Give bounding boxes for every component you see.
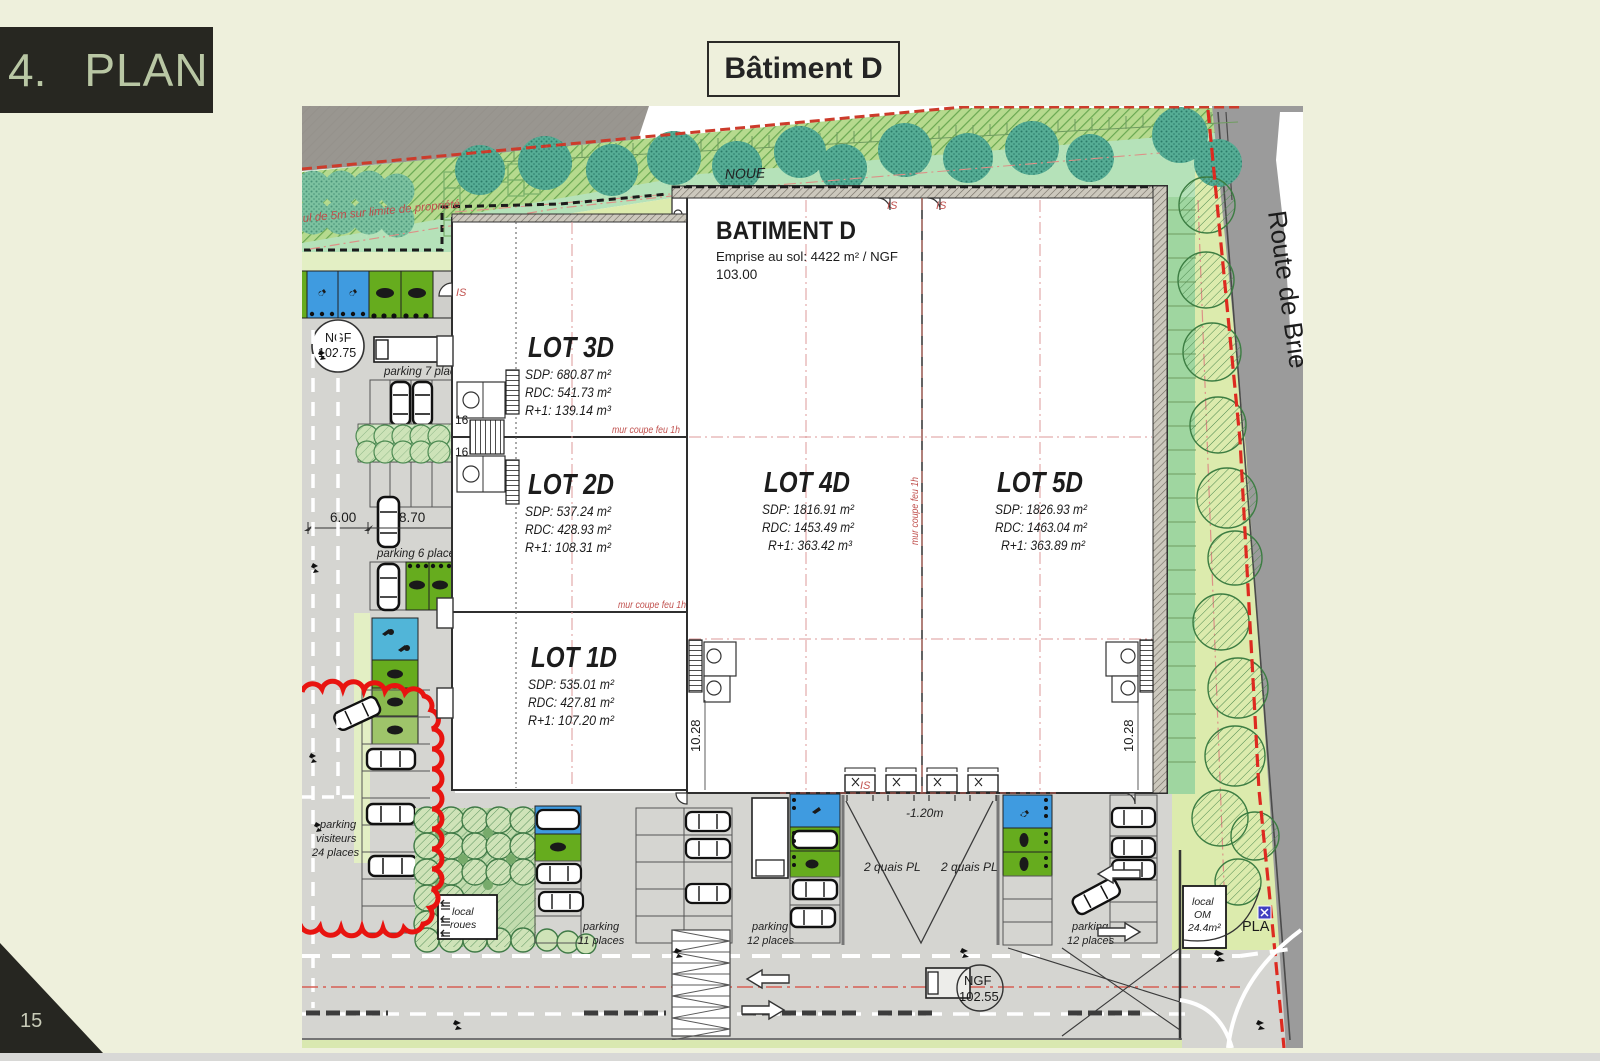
svg-text:R+1: 139.14 m³: R+1: 139.14 m³ — [525, 403, 611, 418]
svg-text:mur coupe feu 1h: mur coupe feu 1h — [618, 599, 686, 611]
svg-text:-1.20m: -1.20m — [906, 806, 943, 820]
svg-text:IS: IS — [936, 200, 947, 212]
svg-text:10.28: 10.28 — [688, 719, 703, 752]
svg-text:R+1: 363.42 m³: R+1: 363.42 m³ — [768, 538, 852, 553]
svg-text:R+1: 107.20 m²: R+1: 107.20 m² — [528, 713, 614, 728]
svg-text:mur coupe feu 1h: mur coupe feu 1h — [612, 424, 680, 436]
svg-text:NGF: NGF — [964, 973, 992, 988]
svg-text:LOT 3D: LOT 3D — [528, 332, 614, 364]
svg-text:R+1: 108.31 m²: R+1: 108.31 m² — [525, 540, 611, 555]
svg-text:LOT 1D: LOT 1D — [531, 642, 617, 674]
svg-text:SDP: 1826.93 m²: SDP: 1826.93 m² — [995, 502, 1087, 517]
svg-text:visiteurs: visiteurs — [316, 833, 357, 845]
svg-text:Emprise au sol: 4422 m² / NGF: Emprise au sol: 4422 m² / NGF — [716, 249, 898, 264]
svg-text:12 places: 12 places — [1067, 935, 1115, 947]
svg-text:24 places: 24 places — [311, 847, 360, 859]
svg-text:103.00: 103.00 — [716, 267, 757, 282]
svg-text:LOT 4D: LOT 4D — [764, 467, 850, 499]
svg-text:roues: roues — [450, 919, 477, 931]
svg-text:OM: OM — [1194, 909, 1211, 921]
svg-text:RDC: 1453.49 m²: RDC: 1453.49 m² — [762, 520, 854, 535]
svg-text:102.55: 102.55 — [959, 989, 999, 1004]
svg-text:2 quais PL: 2 quais PL — [863, 860, 921, 874]
svg-text:24.4m²: 24.4m² — [1187, 922, 1221, 934]
svg-text:parking 6 places: parking 6 places — [376, 548, 461, 560]
svg-text:15: 15 — [20, 1010, 42, 1032]
svg-text:2 quais PL: 2 quais PL — [940, 860, 998, 874]
svg-text:R+1: 363.89 m²: R+1: 363.89 m² — [1001, 538, 1085, 553]
svg-text:SDP: 1816.91 m²: SDP: 1816.91 m² — [762, 502, 854, 517]
svg-text:IS: IS — [456, 287, 467, 299]
svg-text:SDP: 680.87 m²: SDP: 680.87 m² — [525, 367, 611, 382]
svg-text:NOUE: NOUE — [725, 165, 767, 182]
svg-text:RDC: 541.73 m²: RDC: 541.73 m² — [525, 385, 611, 400]
svg-text:IS: IS — [860, 780, 871, 792]
svg-text:local: local — [452, 906, 474, 918]
svg-text:parking: parking — [751, 921, 789, 933]
svg-text:16: 16 — [455, 445, 469, 459]
svg-text:parking: parking — [319, 819, 357, 831]
svg-text:6.00: 6.00 — [330, 510, 356, 525]
svg-text:8.70: 8.70 — [399, 510, 425, 525]
svg-text:11 places: 11 places — [578, 935, 625, 947]
svg-text:mur coupe feu 1h: mur coupe feu 1h — [909, 477, 921, 545]
svg-text:RDC: 428.93 m²: RDC: 428.93 m² — [525, 522, 611, 537]
svg-text:local: local — [1192, 896, 1214, 908]
svg-text:PLA: PLA — [1242, 919, 1270, 935]
svg-text:LOT 5D: LOT 5D — [997, 467, 1083, 499]
svg-text:BATIMENT D: BATIMENT D — [716, 217, 856, 245]
svg-text:RDC: 427.81 m²: RDC: 427.81 m² — [528, 695, 614, 710]
svg-text:IS: IS — [887, 200, 898, 212]
svg-text:parking: parking — [582, 921, 620, 933]
svg-text:LOT 2D: LOT 2D — [528, 469, 614, 501]
svg-text:SDP: 537.24 m²: SDP: 537.24 m² — [525, 504, 611, 519]
svg-text:RDC: 1463.04 m²: RDC: 1463.04 m² — [995, 520, 1087, 535]
svg-text:10.28: 10.28 — [1121, 719, 1136, 752]
svg-text:16: 16 — [455, 413, 469, 427]
svg-text:SDP: 535.01 m²: SDP: 535.01 m² — [528, 677, 614, 692]
svg-text:12 places: 12 places — [747, 935, 795, 947]
